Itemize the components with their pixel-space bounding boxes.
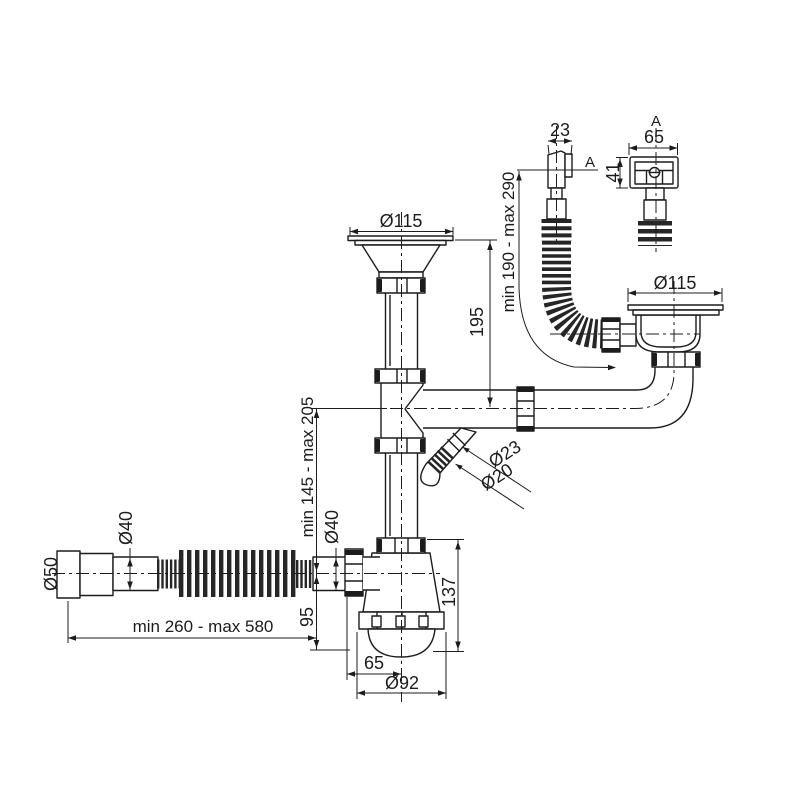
drain-nut [652, 352, 700, 367]
overflow-hose [557, 241, 603, 334]
dim-label-overflow-neck-width: 23 [550, 120, 570, 140]
union-nut [375, 438, 425, 453]
dim-label-inlet-height-range: min 145 - max 205 [298, 397, 317, 538]
dim-label-hose-end-diameter: Ø50 [41, 557, 61, 591]
dim-label-cover-width: 65 [644, 127, 664, 147]
dim-label-overflow-hose-range: min 190 - max 290 [499, 172, 518, 313]
drawing-canvas: Ø115 195 min 190 - max 290 23 A A 65 41 … [0, 0, 800, 800]
dim-label-right-drain-diameter: Ø115 [654, 273, 697, 293]
dim-label-cover-height: 41 [603, 162, 623, 182]
right-drain-assembly [628, 305, 723, 367]
top-drain-assembly [348, 236, 453, 293]
dim-label-top-drain-diameter: Ø115 [380, 211, 423, 231]
dim-label-siphon-cup-diameter: Ø92 [385, 673, 419, 693]
dim-label-hose-length-range: min 260 - max 580 [133, 617, 274, 636]
overflow-cover-detail [630, 157, 678, 246]
hose-nut [345, 549, 363, 596]
dim-label-hose-diameter-left: Ø40 [116, 511, 136, 545]
siphon-technical-drawing: Ø115 195 min 190 - max 290 23 A A 65 41 … [0, 0, 800, 800]
dim-label-drain-height: 195 [467, 307, 487, 337]
dim-label-hose-diameter-right: Ø40 [322, 510, 342, 544]
dim-label-siphon-offset: 65 [364, 653, 384, 673]
overflow-nut [602, 318, 620, 352]
section-marker-a: A [585, 154, 595, 171]
dim-label-siphon-height: 137 [439, 577, 459, 607]
machine-spout [421, 428, 476, 486]
dim-label-spout-inner-diameter: Ø20 [477, 459, 516, 494]
union-nut [375, 369, 425, 383]
dim-label-outlet-drop: 95 [297, 607, 317, 627]
